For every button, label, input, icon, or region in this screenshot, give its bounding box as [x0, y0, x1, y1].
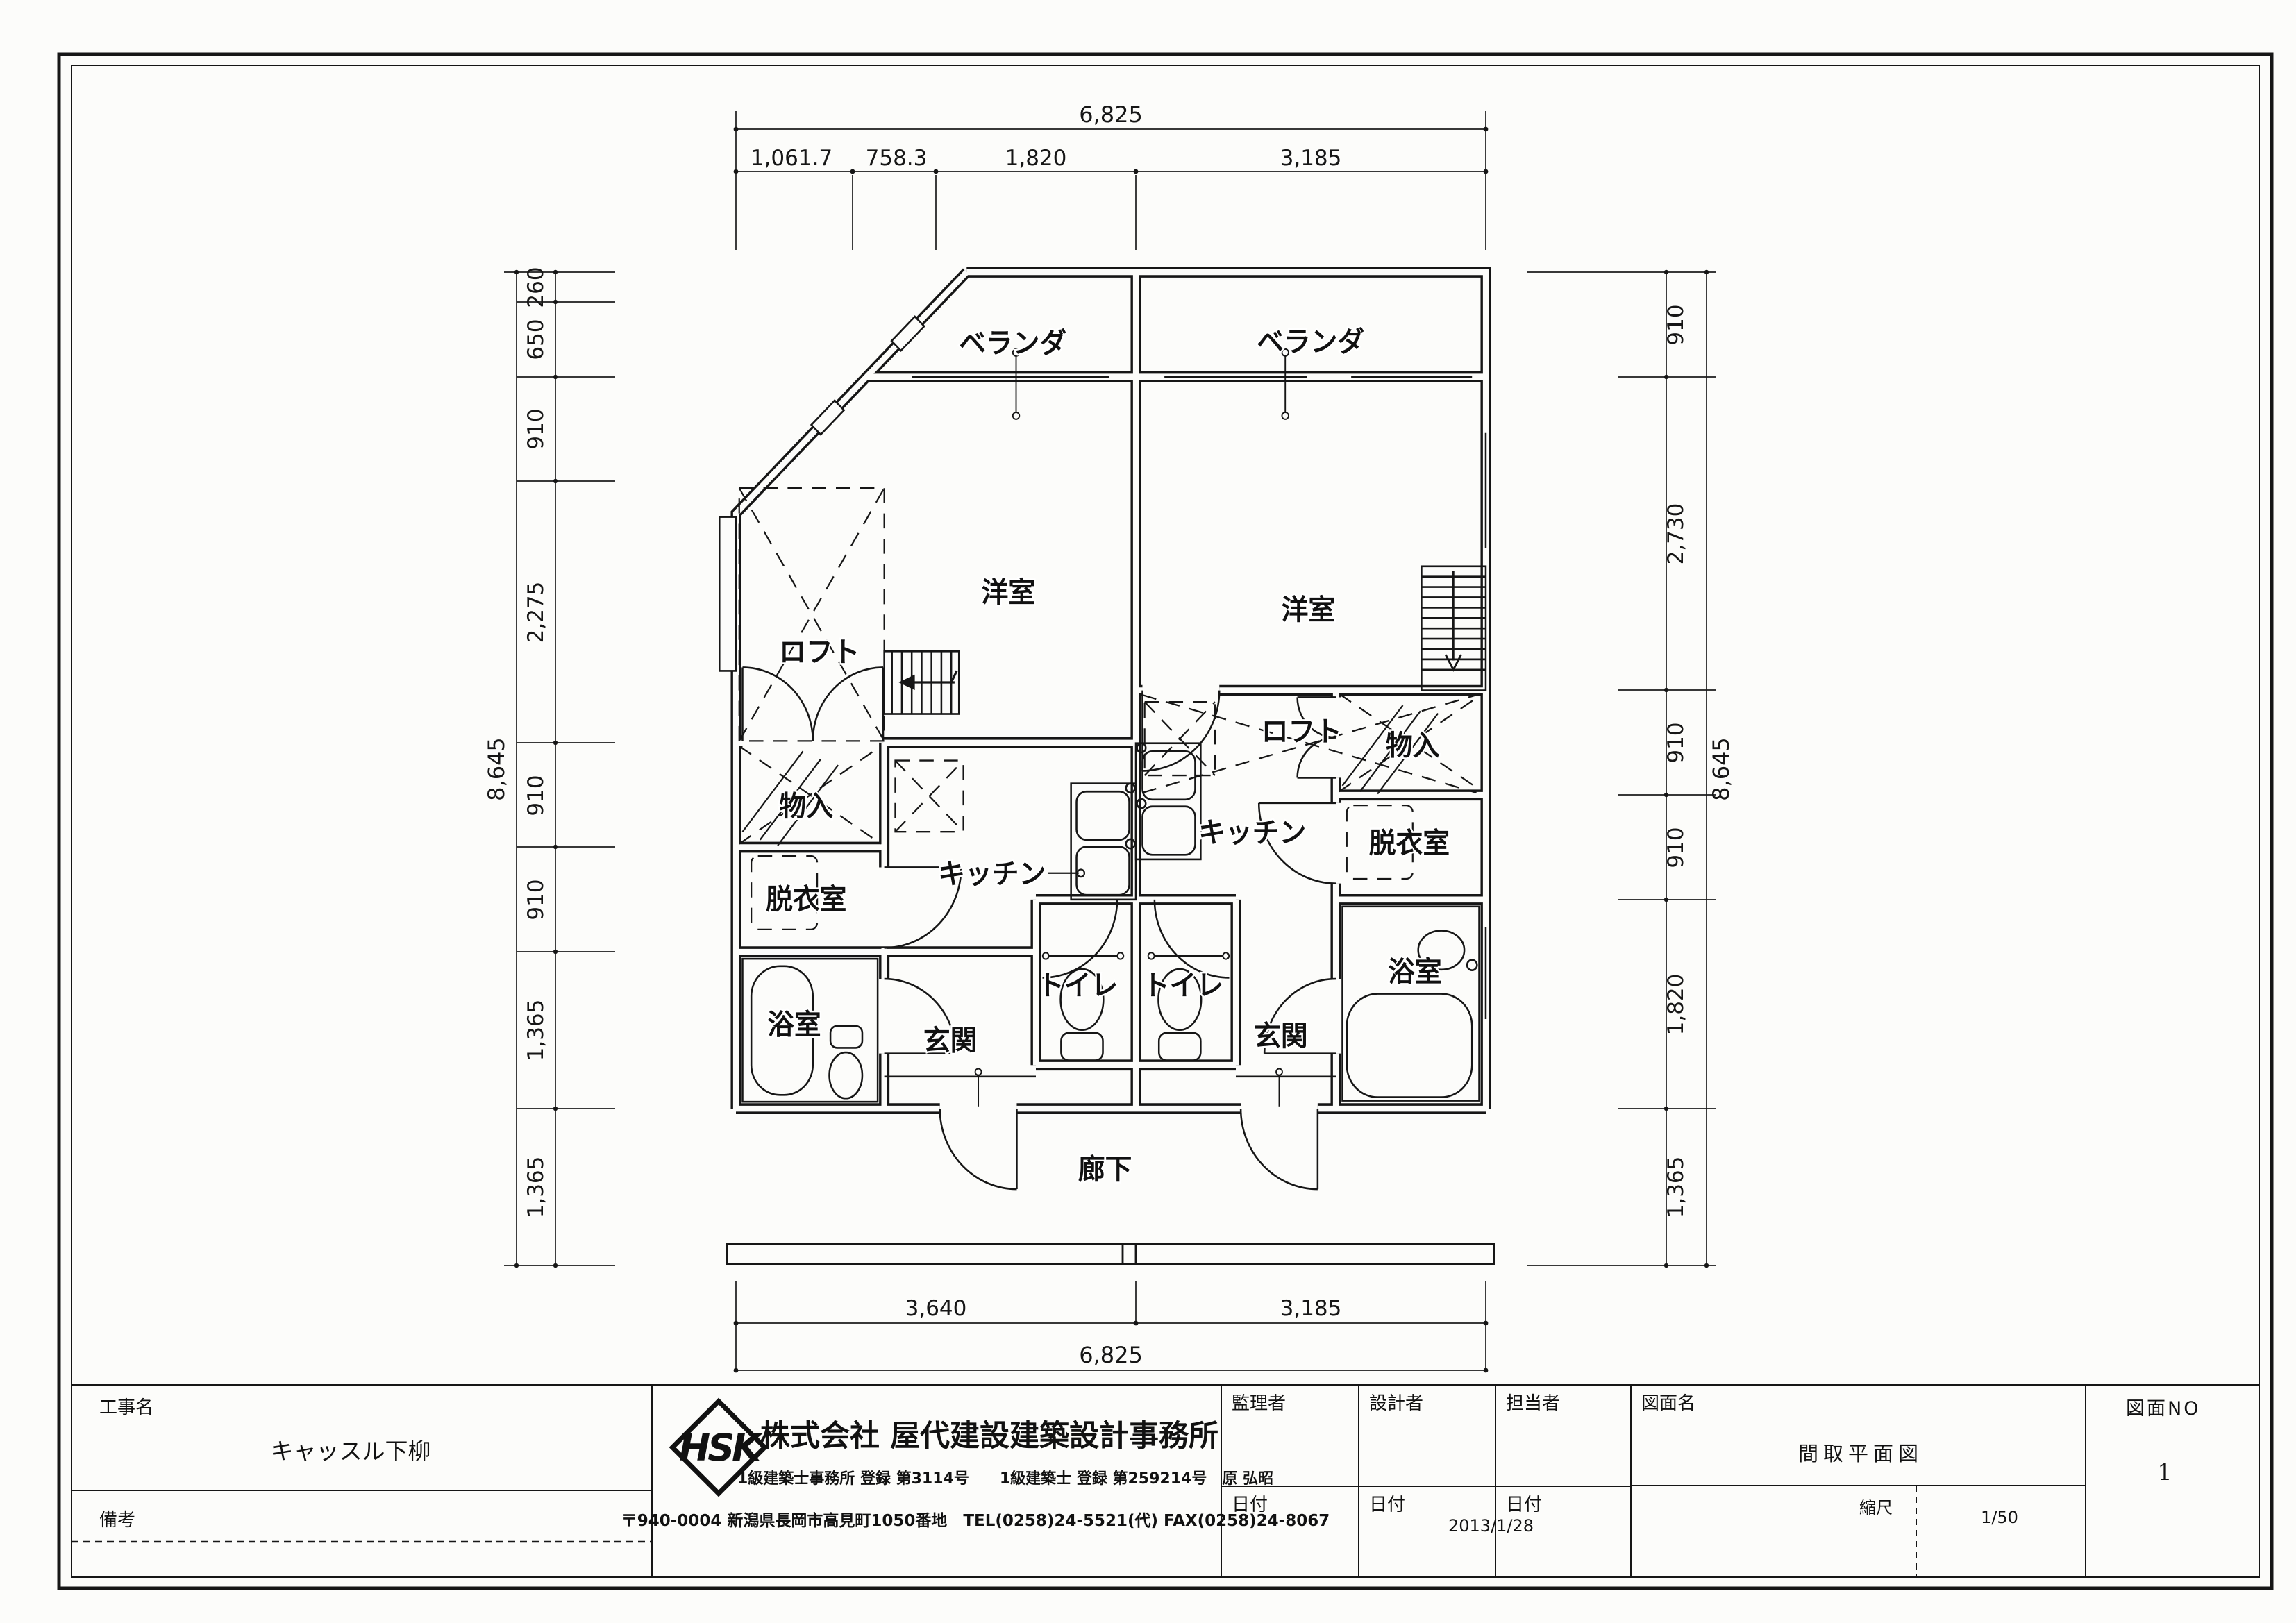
dim-right-seg-1: 2,730: [1664, 503, 1689, 565]
room-label-kitchen-left: キッチン: [938, 858, 1046, 891]
bay-window: [719, 517, 736, 671]
toilet-tank-right: [1159, 1033, 1200, 1061]
dim-top: 6,825 1,061.7 758.3 1,820 3,185: [734, 101, 1489, 250]
scale-label: 縮尺: [1859, 1498, 1893, 1517]
dashed-construction: [739, 488, 1482, 930]
company-license: 1級建築士事務所 登録 第3114号 1級建築士 登録 第259214号 原 弘…: [737, 1470, 1273, 1488]
symbol-dot: [975, 1069, 982, 1075]
toilet-tank-left: [1061, 1033, 1103, 1061]
dim-extensions: [504, 272, 615, 1265]
room-label-monoire-left: 物入: [780, 790, 834, 823]
dim-top-seg-2: 1,820: [1005, 146, 1067, 171]
windows-and-thin-lines: [719, 317, 1486, 1077]
loft-left-cross: [739, 488, 885, 741]
dim-right-seg-5: 1,365: [1664, 1157, 1689, 1218]
symbol-dot: [1276, 1069, 1282, 1075]
room-label-genkan-left: 玄関: [923, 1025, 978, 1057]
room-label-yokushitsu-left: 浴室: [767, 1009, 821, 1041]
entrance-left-door: [940, 1109, 1017, 1189]
dim-top-labels: 6,825 1,061.7 758.3 1,820 3,185: [751, 101, 1342, 171]
dim-bottom-labels: 3,640 3,185 6,825: [905, 1296, 1342, 1368]
entrance-right-door: [1241, 1109, 1318, 1189]
room-label-veranda-left: ベランダ: [959, 327, 1066, 360]
room-label-genkan-right: 玄関: [1254, 1020, 1308, 1052]
stairs-right: [1421, 566, 1486, 691]
kitchen-sink-left-1: [1077, 791, 1130, 840]
drawing-name-label: 図面名: [1641, 1393, 1695, 1414]
dim-top-seg-0: 1,061.7: [751, 146, 832, 171]
room-label-loft-left: ロフト: [779, 636, 860, 668]
dim-extensions: [1527, 272, 1716, 1265]
symbol-dot: [1282, 412, 1288, 419]
room-label-yoshitsu-left: 洋室: [982, 576, 1036, 609]
bath-right-room-liner: [1342, 907, 1479, 1101]
walkway: [727, 1244, 1494, 1263]
room-label-veranda-right: ベランダ: [1257, 326, 1364, 358]
dim-top-overall: 6,825: [1079, 101, 1143, 128]
kitchen-leader-left: [1048, 869, 1084, 877]
basin-left: [830, 1052, 862, 1098]
walkway-strip: [727, 1244, 1494, 1263]
dim-left-seg-4: 910: [523, 775, 548, 816]
walkway-joint: [1123, 1244, 1136, 1263]
room-label-yokushitsu-right: 浴室: [1388, 956, 1442, 989]
vanity-left: [830, 1026, 862, 1048]
dim-ticks: [734, 127, 1489, 174]
company-address: 〒940-0004 新潟県長岡市高見町1050番地 TEL(0258)24-55…: [621, 1511, 1330, 1530]
dim-left-seg-7: 1,365: [523, 1157, 548, 1218]
room-label-monoire-right: 物入: [1386, 729, 1440, 762]
logo-text: HSK: [679, 1426, 764, 1470]
room-label-loft-right: ロフト: [1262, 716, 1342, 748]
drawing-no: 1: [2158, 1458, 2172, 1486]
dim-left-overall: 8,645: [483, 737, 510, 801]
project-name: キャッスル下柳: [271, 1438, 431, 1465]
drawing-name: 間取平面図: [1798, 1442, 1923, 1465]
kitchen-sink-right-2: [1142, 807, 1195, 855]
symbol-dot: [1043, 952, 1049, 959]
toilet-right-door: [1155, 900, 1230, 978]
designer-label: 設計者: [1369, 1393, 1423, 1414]
project-label: 工事名: [99, 1397, 153, 1418]
stair-down-arrow: [1446, 571, 1461, 669]
loft-left-outline: [739, 488, 885, 741]
room-label-toilet-left: トイレ: [1037, 969, 1118, 1002]
design-date: 2013/1/28: [1448, 1516, 1534, 1536]
dim-bottom: 3,640 3,185 6,825: [734, 1281, 1489, 1372]
room-label-kitchen-right: キッチン: [1198, 816, 1306, 849]
closet-left-cross: [895, 761, 963, 832]
toilet-left-door: [1042, 900, 1117, 978]
dim-top-seg-3: 3,185: [1280, 146, 1342, 171]
dim-left-seg-5: 910: [523, 879, 548, 920]
outer-border: [59, 54, 2272, 1588]
staff-label: 担当者: [1506, 1393, 1560, 1414]
remarks-label: 備考: [99, 1510, 135, 1531]
diagonal-post-1: [891, 317, 924, 351]
drawing-sheet: ベランダ ベランダ 洋室 洋室 ロフト ロフト 物入 物入 脱衣室 脱衣室 キッ…: [0, 0, 2296, 1623]
inner-border: [72, 65, 2259, 1577]
dim-left-seg-3: 2,275: [523, 582, 548, 644]
room-label-toilet-right: トイレ: [1143, 969, 1223, 1002]
symbol-dot: [1223, 952, 1229, 959]
bathtub-right: [1347, 994, 1472, 1098]
dim-right-seg-4: 1,820: [1664, 974, 1689, 1036]
floor-plan-sheet: ベランダ ベランダ 洋室 洋室 ロフト ロフト 物入 物入 脱衣室 脱衣室 キッ…: [0, 0, 2296, 1623]
dim-right-overall: 8,645: [1708, 737, 1734, 801]
diagonal-post-2: [812, 401, 844, 435]
dim-right-labels: 910 2,730 910 910 1,820 1,365 8,645: [1664, 304, 1734, 1218]
dim-left-seg-2: 910: [523, 408, 548, 449]
scale-value: 1/50: [1981, 1508, 2018, 1527]
dim-left-seg-0: 260: [523, 267, 548, 308]
dim-lines: [1666, 272, 1707, 1265]
title-block: 工事名 キャッスル下柳 備考 HSK 株式会社 屋代建設建築設計事務所 1級建築…: [72, 1385, 2259, 1577]
dim-bottom-seg-0: 3,640: [905, 1296, 967, 1321]
dim-ticks: [1664, 270, 1709, 1268]
supervisor-label: 監理者: [1232, 1393, 1286, 1414]
dim-left-seg-6: 1,365: [523, 1000, 548, 1061]
date-label-designer: 日付: [1369, 1495, 1405, 1515]
dim-bottom-seg-1: 3,185: [1280, 1296, 1342, 1321]
stairs-left: [885, 651, 960, 714]
dim-right-seg-3: 910: [1664, 827, 1689, 868]
floor-plan: ベランダ ベランダ 洋室 洋室 ロフト ロフト 物入 物入 脱衣室 脱衣室 キッ…: [719, 272, 1494, 1264]
dim-bottom-overall: 6,825: [1079, 1342, 1143, 1368]
dim-right: 910 2,730 910 910 1,820 1,365 8,645: [1527, 270, 1734, 1268]
dim-right-seg-0: 910: [1664, 304, 1689, 345]
company-name: 株式会社 屋代建設建築設計事務所: [760, 1419, 1218, 1454]
sheet-border: [59, 54, 2272, 1588]
dim-right-seg-2: 910: [1664, 722, 1689, 763]
date-label-supervisor: 日付: [1232, 1495, 1268, 1515]
symbol-dot: [1117, 952, 1123, 959]
dim-top-seg-1: 758.3: [866, 146, 928, 171]
loft-left-door-1: [742, 667, 812, 741]
loft-left-door-2: [813, 667, 883, 741]
symbol-dot: [1148, 952, 1155, 959]
dim-extensions: [736, 111, 1486, 250]
drawing-no-label: 図面NO: [2126, 1398, 2200, 1420]
room-label-rouka: 廊下: [1078, 1153, 1132, 1186]
dim-lines: [736, 129, 1486, 171]
dim-left: 260 650 910 2,275 910 910 1,365 1,365 8,…: [483, 267, 615, 1268]
date-label-staff: 日付: [1506, 1495, 1542, 1515]
room-label-yoshitsu-right: 洋室: [1282, 594, 1336, 626]
dim-left-seg-1: 650: [523, 319, 548, 360]
faucet: [1467, 960, 1477, 970]
room-label-datsui-right: 脱衣室: [1369, 827, 1450, 859]
symbol-dot: [1013, 412, 1019, 419]
room-label-datsui-left: 脱衣室: [766, 883, 846, 916]
